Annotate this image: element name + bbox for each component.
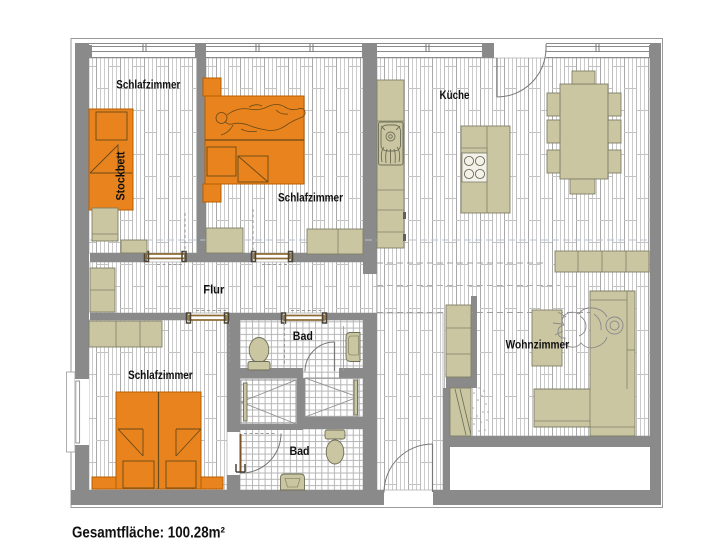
svg-text:Bad: Bad [293, 329, 313, 343]
svg-text:Schlafzimmer: Schlafzimmer [128, 368, 193, 382]
svg-text:Küche: Küche [440, 88, 470, 102]
svg-text:Bad: Bad [290, 444, 310, 458]
svg-text:Flur: Flur [203, 283, 224, 297]
svg-text:Stockbett: Stockbett [114, 152, 128, 201]
svg-text:Wohnzimmer: Wohnzimmer [506, 338, 570, 352]
svg-text:Schlafzimmer: Schlafzimmer [278, 190, 343, 204]
svg-text:Gesamtfläche: 100.28m²: Gesamtfläche: 100.28m² [72, 525, 225, 542]
svg-text:Schlafzimmer: Schlafzimmer [116, 78, 180, 92]
